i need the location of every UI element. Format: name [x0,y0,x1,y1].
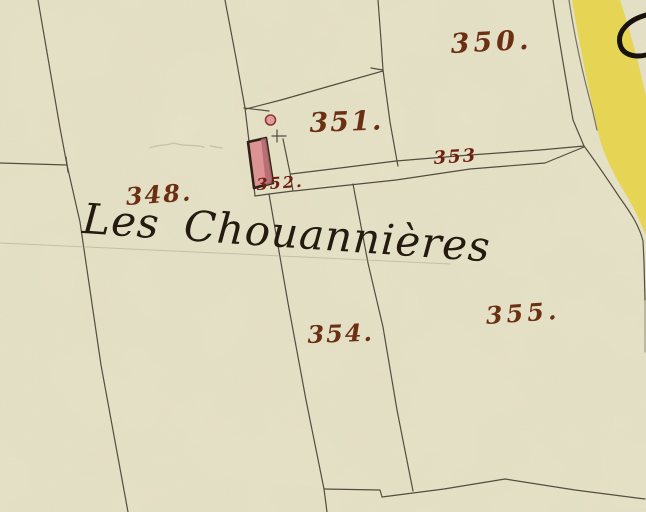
well-marker [266,115,276,125]
parcel-label-353: 353 [433,147,478,168]
parcel-label-352: 352. [256,174,304,193]
parcel-label-350: 350. [450,27,533,58]
parcel-label-355: 355. [485,299,561,328]
parcel-label-351: 351. [309,107,384,137]
cadastral-map: 348. 350. 351. 352. 353 354. 355. Les Ch… [0,0,646,512]
parcel-label-354: 354. [307,321,374,347]
